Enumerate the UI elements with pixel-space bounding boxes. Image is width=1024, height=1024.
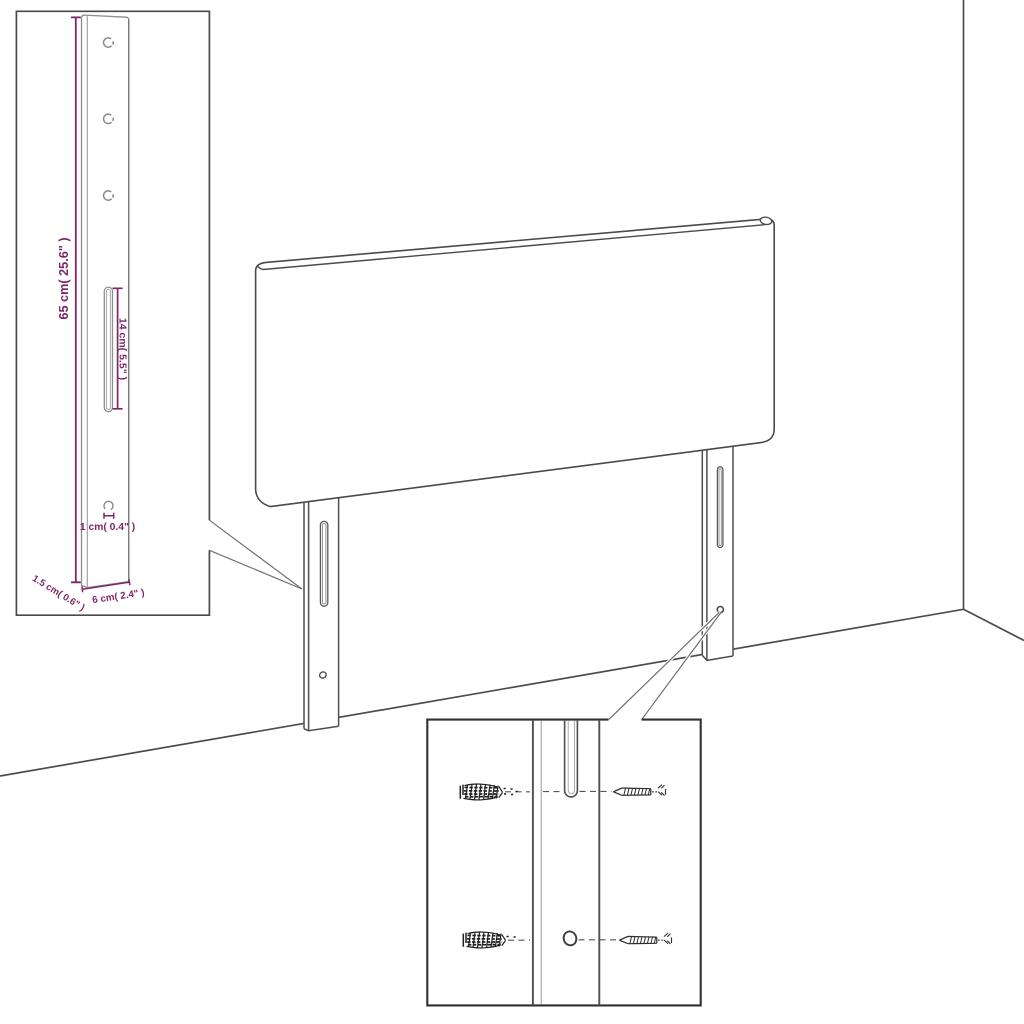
svg-text:65 cm( 25.6" ): 65 cm( 25.6" ) [57,237,71,319]
svg-text:14 cm( 5.5" ): 14 cm( 5.5" ) [117,318,129,380]
svg-text:1 cm( 0.4" ): 1 cm( 0.4" ) [80,522,135,533]
